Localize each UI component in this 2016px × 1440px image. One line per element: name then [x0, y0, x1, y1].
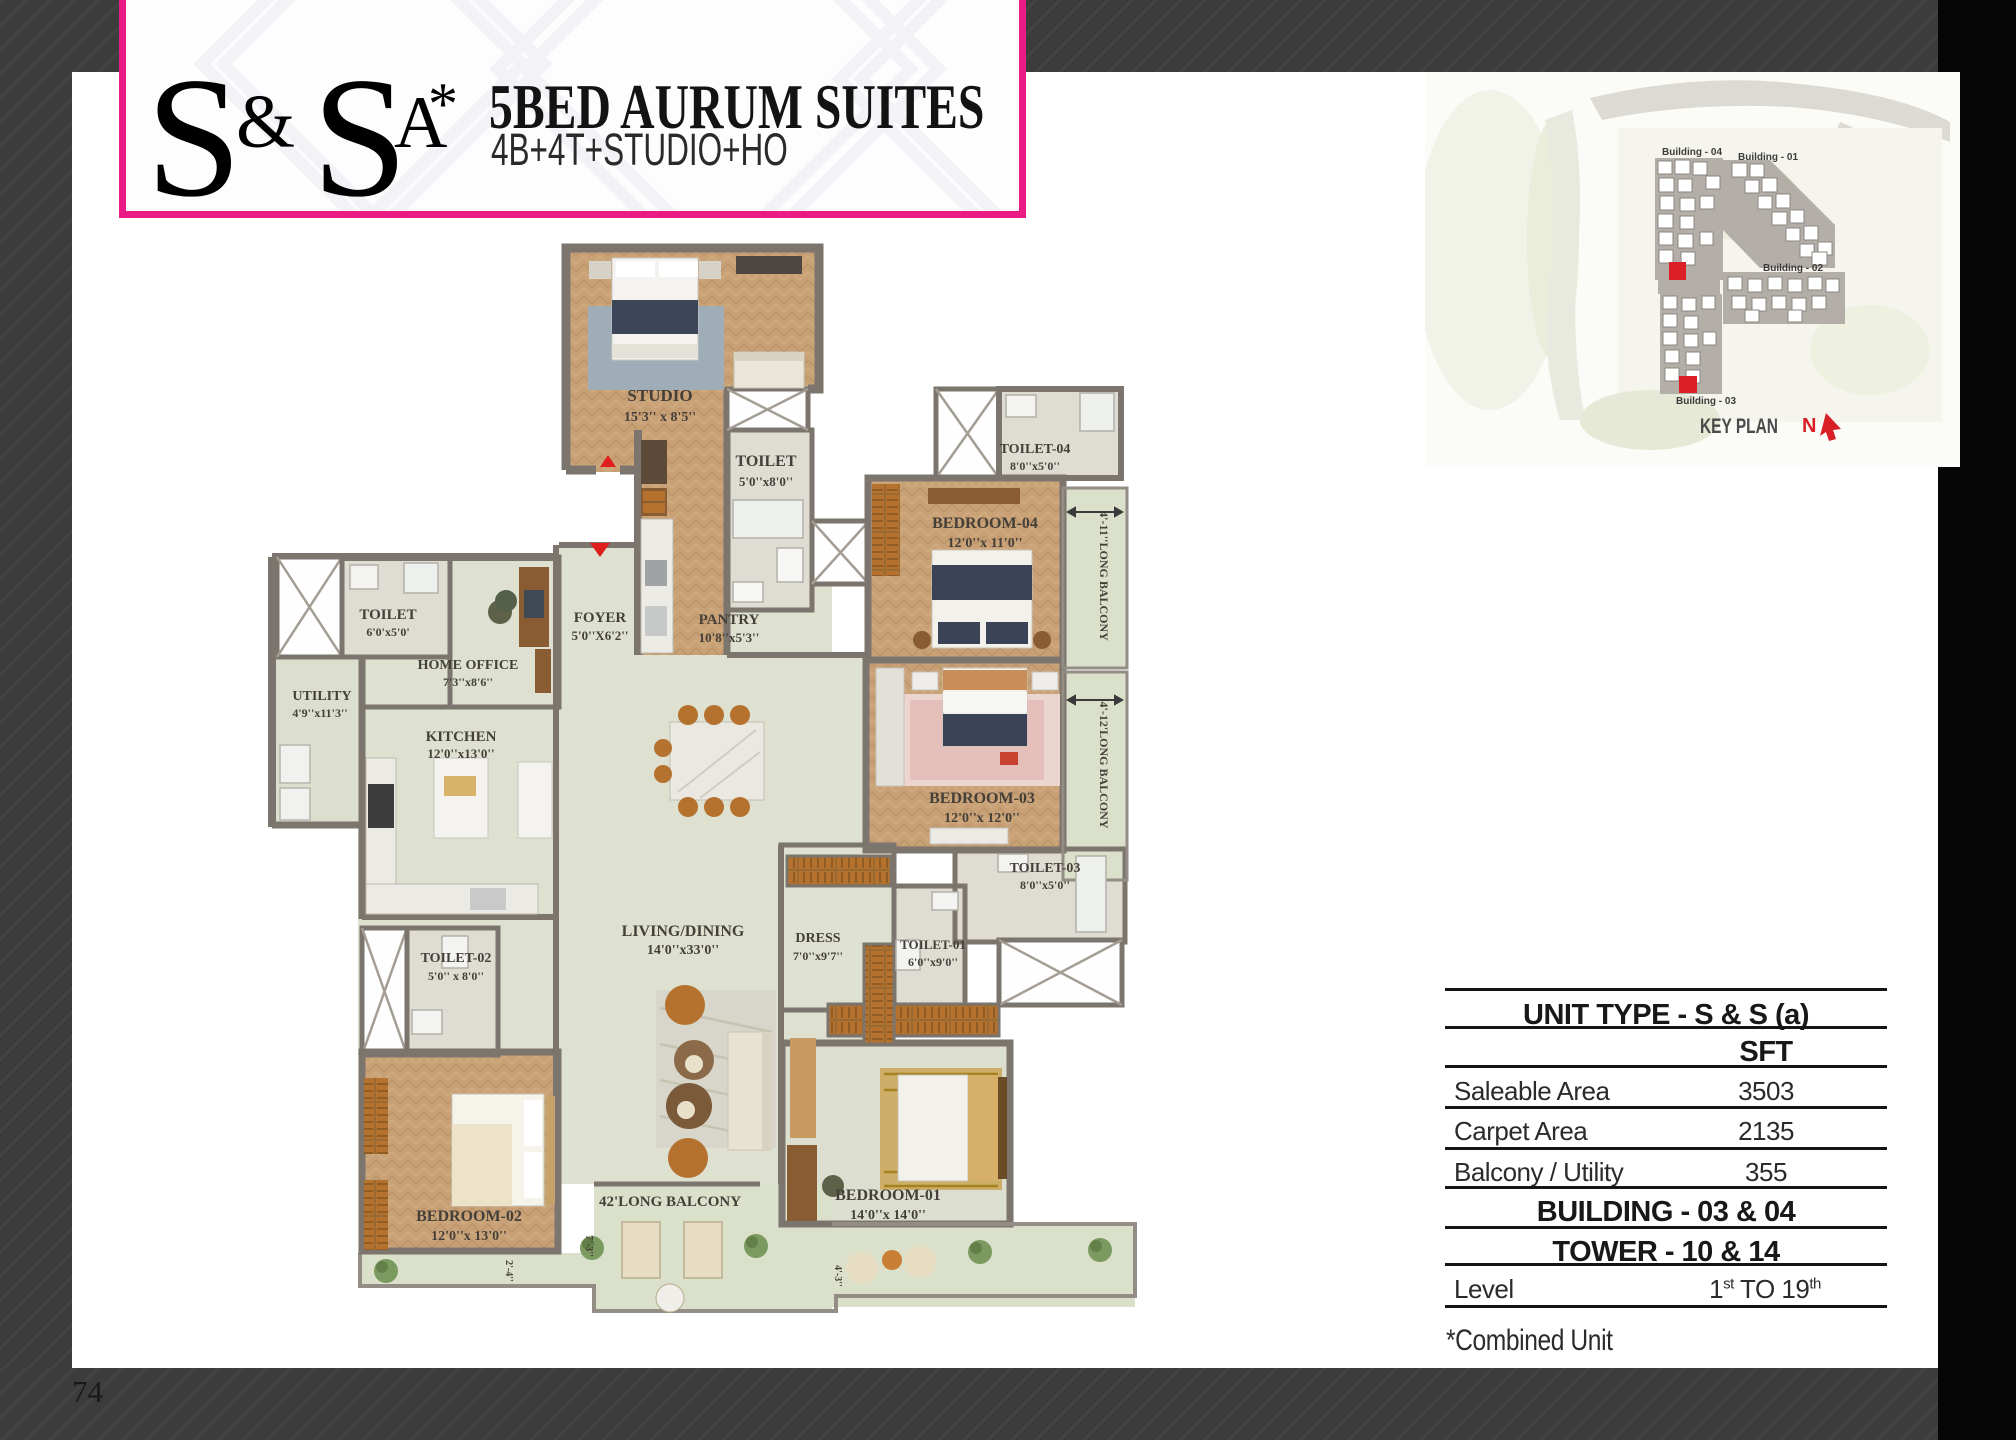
svg-text:12'0''x 12'0'': 12'0''x 12'0'' [944, 811, 1020, 826]
svg-text:FOYER: FOYER [574, 610, 627, 626]
svg-text:4'-3'': 4'-3'' [832, 1265, 843, 1287]
svg-text:12'0''x 11'0'': 12'0''x 11'0'' [947, 536, 1022, 551]
svg-text:42'LONG BALCONY: 42'LONG BALCONY [599, 1194, 741, 1210]
svg-text:12'0''x13'0'': 12'0''x13'0'' [427, 746, 494, 761]
svg-text:5'0''X6'2'': 5'0''X6'2'' [571, 628, 628, 643]
svg-text:BEDROOM-03: BEDROOM-03 [929, 790, 1035, 807]
svg-text:KITCHEN: KITCHEN [426, 729, 497, 745]
svg-text:TOILET-02: TOILET-02 [421, 951, 492, 966]
svg-text:HOME OFFICE: HOME OFFICE [418, 658, 519, 673]
svg-text:4'-11''LONG BALCONY: 4'-11''LONG BALCONY [1097, 511, 1111, 641]
svg-text:5'0'' x 8'0'': 5'0'' x 8'0'' [428, 969, 484, 983]
svg-text:Building - 03: Building - 03 [1676, 396, 1736, 407]
svg-text:4'-12'LONG BALCONY: 4'-12'LONG BALCONY [1097, 701, 1111, 828]
svg-text:6'0''x9'0'': 6'0''x9'0'' [908, 955, 958, 969]
svg-text:N: N [1802, 415, 1816, 437]
svg-text:8'0''x5'0'': 8'0''x5'0'' [1010, 459, 1060, 473]
svg-text:2'-4'': 2'-4'' [503, 1260, 514, 1282]
svg-text:TOILET-01: TOILET-01 [900, 937, 966, 952]
svg-text:STUDIO: STUDIO [627, 386, 692, 405]
svg-text:4'9''x11'3'': 4'9''x11'3'' [292, 706, 347, 720]
svg-text:6'0'x5'0': 6'0'x5'0' [366, 625, 409, 639]
svg-text:TOILET: TOILET [735, 453, 796, 470]
svg-text:15'3'' x 8'5'': 15'3'' x 8'5'' [624, 410, 696, 425]
svg-text:TOILET-04: TOILET-04 [1000, 442, 1071, 457]
svg-text:UTILITY: UTILITY [292, 689, 351, 704]
svg-text:DRESS: DRESS [795, 931, 840, 946]
svg-text:TOILET: TOILET [359, 607, 416, 623]
svg-text:BEDROOM-04: BEDROOM-04 [932, 515, 1038, 532]
svg-text:7'3''x8'6'': 7'3''x8'6'' [443, 675, 493, 689]
svg-text:KEY PLAN: KEY PLAN [1700, 415, 1778, 438]
svg-text:Building - 02: Building - 02 [1763, 263, 1823, 274]
svg-text:8'0''x5'0'': 8'0''x5'0'' [1020, 878, 1070, 892]
svg-text:14'0''x 14'0'': 14'0''x 14'0'' [850, 1208, 926, 1223]
svg-text:14'0''x33'0'': 14'0''x33'0'' [647, 943, 719, 958]
svg-text:TOILET-03: TOILET-03 [1010, 861, 1081, 876]
svg-text:7'-3'': 7'-3'' [583, 1235, 594, 1257]
svg-text:Building - 01: Building - 01 [1738, 152, 1798, 163]
svg-text:7'0''x9'7'': 7'0''x9'7'' [793, 949, 843, 963]
svg-text:BEDROOM-02: BEDROOM-02 [416, 1208, 522, 1225]
svg-text:5'0''x8'0'': 5'0''x8'0'' [739, 474, 793, 489]
svg-text:Building - 04: Building - 04 [1662, 147, 1722, 158]
svg-text:BEDROOM-01: BEDROOM-01 [835, 1187, 941, 1204]
svg-text:12'0''x 13'0'': 12'0''x 13'0'' [431, 1229, 507, 1244]
svg-text:PANTRY: PANTRY [699, 612, 760, 628]
svg-text:LIVING/DINING: LIVING/DINING [622, 923, 745, 940]
svg-text:10'8''x5'3'': 10'8''x5'3'' [699, 630, 760, 645]
